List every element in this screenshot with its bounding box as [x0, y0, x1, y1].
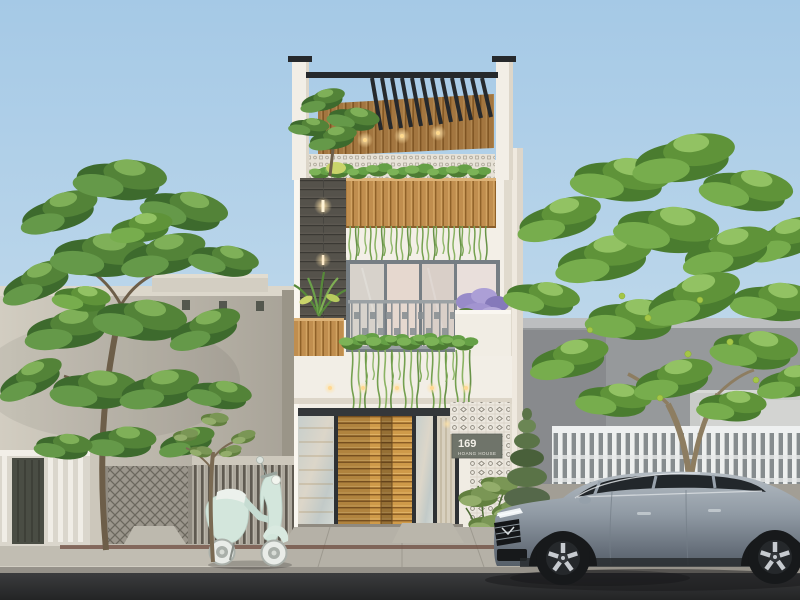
main-house: 169 HOANG HOUSE	[288, 56, 528, 556]
house-sign: 169 HOANG HOUSE	[452, 434, 502, 458]
entrance-gate	[298, 408, 470, 527]
scooter-headlight	[272, 476, 281, 485]
scooter-mirror	[257, 457, 264, 464]
car-mirror	[579, 496, 591, 504]
house-number: 169	[458, 438, 476, 450]
ramp-right	[392, 523, 464, 543]
left-white-fence	[0, 450, 90, 546]
architectural-render: 169 HOANG HOUSE	[0, 0, 800, 600]
house-name: HOANG HOUSE	[458, 451, 496, 456]
scene-canvas: 169 HOANG HOUSE	[0, 0, 800, 600]
